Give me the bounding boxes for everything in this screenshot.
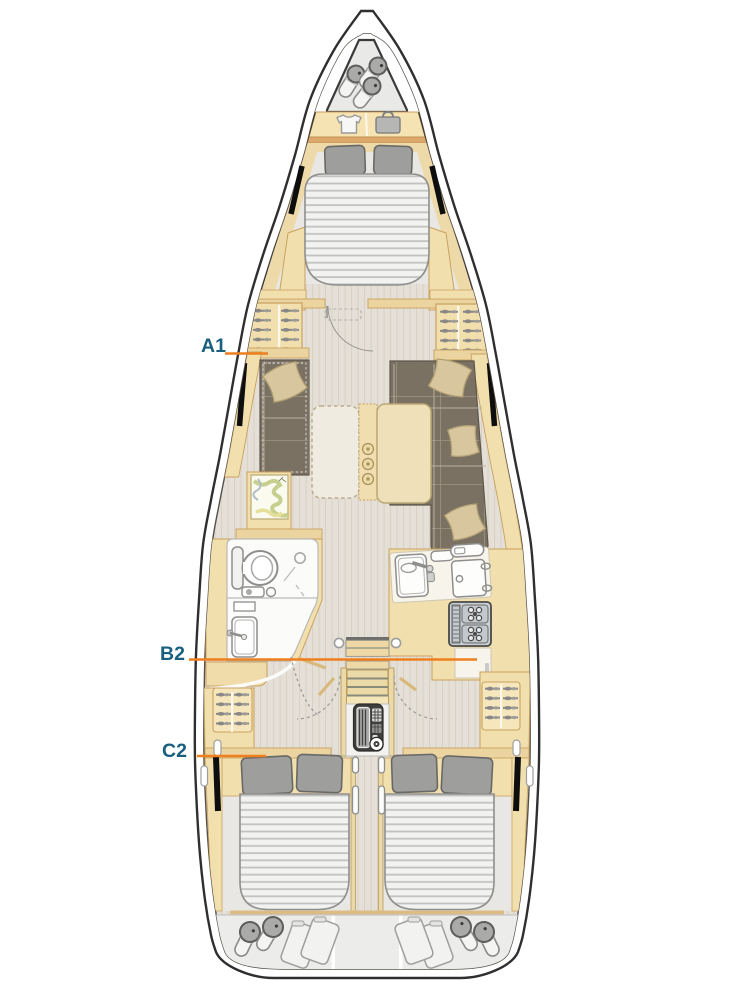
- svg-text:C2: C2: [162, 740, 187, 762]
- svg-text:B2: B2: [160, 643, 185, 665]
- svg-text:A1: A1: [201, 335, 226, 357]
